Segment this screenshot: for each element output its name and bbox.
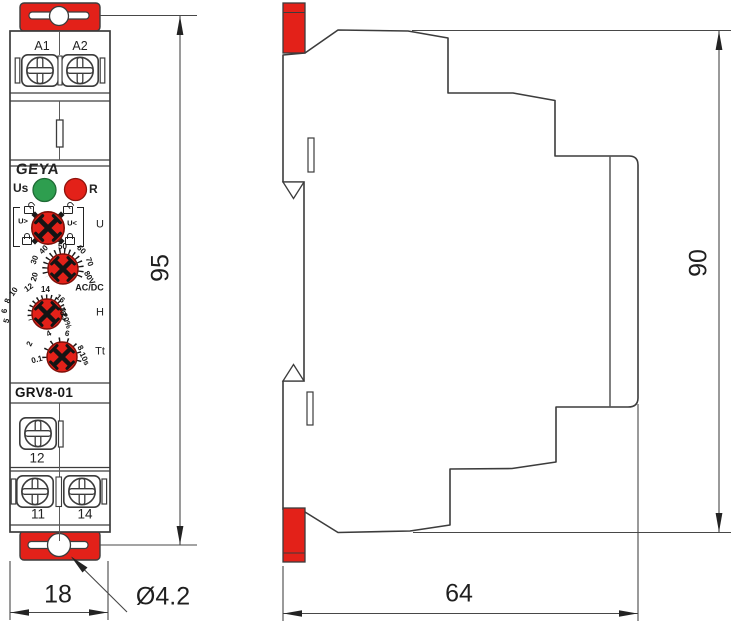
brand-logo: GEYA bbox=[15, 162, 60, 177]
terminal-label-a1: A1 bbox=[34, 40, 49, 53]
dim-value-18: 18 bbox=[44, 583, 72, 608]
dial-scale-value: 50 bbox=[58, 243, 67, 251]
dial-u-left-marking: U> bbox=[18, 217, 28, 225]
model-label: GRV8-01 bbox=[15, 386, 73, 400]
terminal-label-12: 12 bbox=[29, 451, 44, 465]
dial-scale-value: 6 bbox=[0, 308, 8, 313]
unlocked-padlock-icon bbox=[24, 206, 34, 214]
dimension-arrowheads bbox=[11, 16, 723, 617]
dial-u-label: U bbox=[96, 220, 104, 231]
unlocked-padlock-icon bbox=[63, 206, 73, 214]
dimension-drawing: A1 A2 GEYA Us R U> U< U 20 30 40 50 60 7… bbox=[0, 0, 750, 627]
dim-value-90: 90 bbox=[687, 249, 712, 277]
terminal-label-14: 14 bbox=[77, 507, 92, 521]
dial-u-right-marking: U< bbox=[67, 219, 77, 227]
dial-t-label: Tt bbox=[95, 347, 105, 358]
left-bracket bbox=[13, 207, 20, 247]
dim-value-hole: Ø4.2 bbox=[136, 585, 190, 610]
locked-padlock-icon bbox=[22, 237, 32, 245]
led-r-label: R bbox=[89, 183, 98, 195]
dimension-lines bbox=[0, 0, 750, 627]
right-bracket bbox=[77, 207, 84, 247]
dial-h-label: H bbox=[96, 308, 104, 319]
dim-value-64: 64 bbox=[445, 582, 473, 607]
terminal-label-11: 11 bbox=[31, 507, 45, 521]
led-us-label: Us bbox=[13, 182, 28, 194]
dial-scale-value: 14 bbox=[41, 286, 50, 294]
terminal-label-a2: A2 bbox=[72, 40, 87, 53]
dim-value-95: 95 bbox=[149, 254, 174, 282]
dial-voltage-label: AC/DC bbox=[75, 283, 104, 292]
